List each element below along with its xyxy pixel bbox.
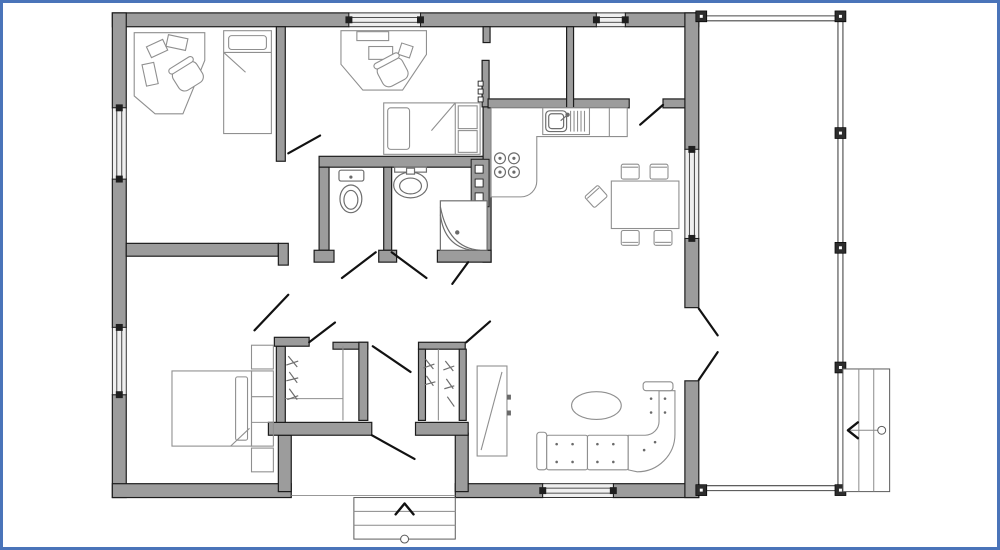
wall-segment [418,349,425,420]
dining-chair [654,230,672,245]
sofa-armrest [537,432,547,470]
wall-segment [319,167,329,250]
toilet-bowl [340,185,362,213]
wall-segment [459,349,466,420]
window [543,484,614,498]
wall-segment [437,250,491,262]
wall-segment [685,381,699,498]
door-utility-room [640,105,663,125]
porch-post [696,485,707,496]
single-bed [384,103,480,154]
mirror-cabinet [477,366,511,456]
door-closet-1 [309,322,335,342]
master-bedroom [172,345,273,472]
window [349,13,421,27]
porch-post [835,128,846,139]
small-bedroom [341,31,480,155]
wall-segment [112,13,349,27]
door-entry [372,435,415,459]
wall-outlet-marks [478,81,483,102]
wall-segment [379,250,397,262]
wc [339,170,364,213]
wall-segment [112,13,126,108]
double-bed [172,371,252,446]
porch-post [696,11,707,22]
wall-segment [359,342,368,420]
wall-segment [418,342,465,349]
wall-segment [416,422,469,435]
wall-segment [483,27,490,43]
wall-segment [488,99,629,108]
door-bathroom [392,252,427,278]
sink-tap [407,168,415,174]
door-porch-leaf-a [699,309,718,336]
wall-segment [276,346,285,422]
wardrobe-closet-2 [423,349,454,420]
hanging-clothes [286,356,298,400]
wall-segment [126,243,278,256]
door-shower-corner [452,262,468,284]
wall-segment [384,167,392,250]
wall-segment [567,27,574,108]
wall-segment [685,238,699,307]
porch-veranda [696,11,846,496]
wall-segment [112,484,291,498]
wall-segment [276,27,285,162]
wall-segment [112,179,126,327]
entry-steps [354,498,455,543]
porch-post [835,242,846,253]
printer [357,32,389,41]
door-porch-leaf-b [699,352,718,380]
door-hall-inner [373,346,411,372]
dining-chair [584,185,607,208]
window [596,13,625,27]
arrow-origin [878,426,886,434]
dining-chair [621,164,639,179]
sofa-corner [628,391,675,472]
wall-segment [455,433,468,491]
floor-plan [3,3,997,547]
blue-frame [0,0,1000,550]
pillow [236,377,248,440]
single-bed [224,31,272,134]
wall-segment [278,243,288,265]
wall-segment [314,250,334,262]
wall-segment [420,13,596,27]
wall-segment [112,395,126,498]
arrow-origin [401,535,409,543]
wall-segment [268,422,371,435]
wall-segment [663,99,685,108]
dining-chair [621,230,639,245]
wardrobe-closet-1 [285,346,343,420]
utility-shaft [471,159,489,206]
nightstand [252,448,274,472]
nightstand [252,345,274,369]
sofa-seat [547,435,588,470]
porch-steps [843,369,890,492]
door-master-bedroom [254,295,288,331]
wall-segment [274,337,309,346]
sofa-seat [587,435,628,470]
door-small-bedroom [288,136,320,154]
living-room [477,366,675,472]
door-closet-2 [466,321,490,342]
window [112,327,126,394]
corner-shower [440,201,487,250]
wall-segment [319,156,491,167]
wall-segment [278,435,291,491]
door-wc [342,252,376,278]
dining-area [584,164,678,245]
dining-table [611,181,679,228]
porch-post [835,11,846,22]
hanging-clothes [443,361,454,406]
office-room [134,31,271,134]
window [112,108,126,179]
kitchen-sink [543,108,590,135]
dining-chair [650,164,668,179]
wall-segment [685,13,699,149]
sofa-armrest [643,382,673,391]
coffee-table [572,392,622,420]
kitchen [491,108,627,197]
window [685,149,699,238]
